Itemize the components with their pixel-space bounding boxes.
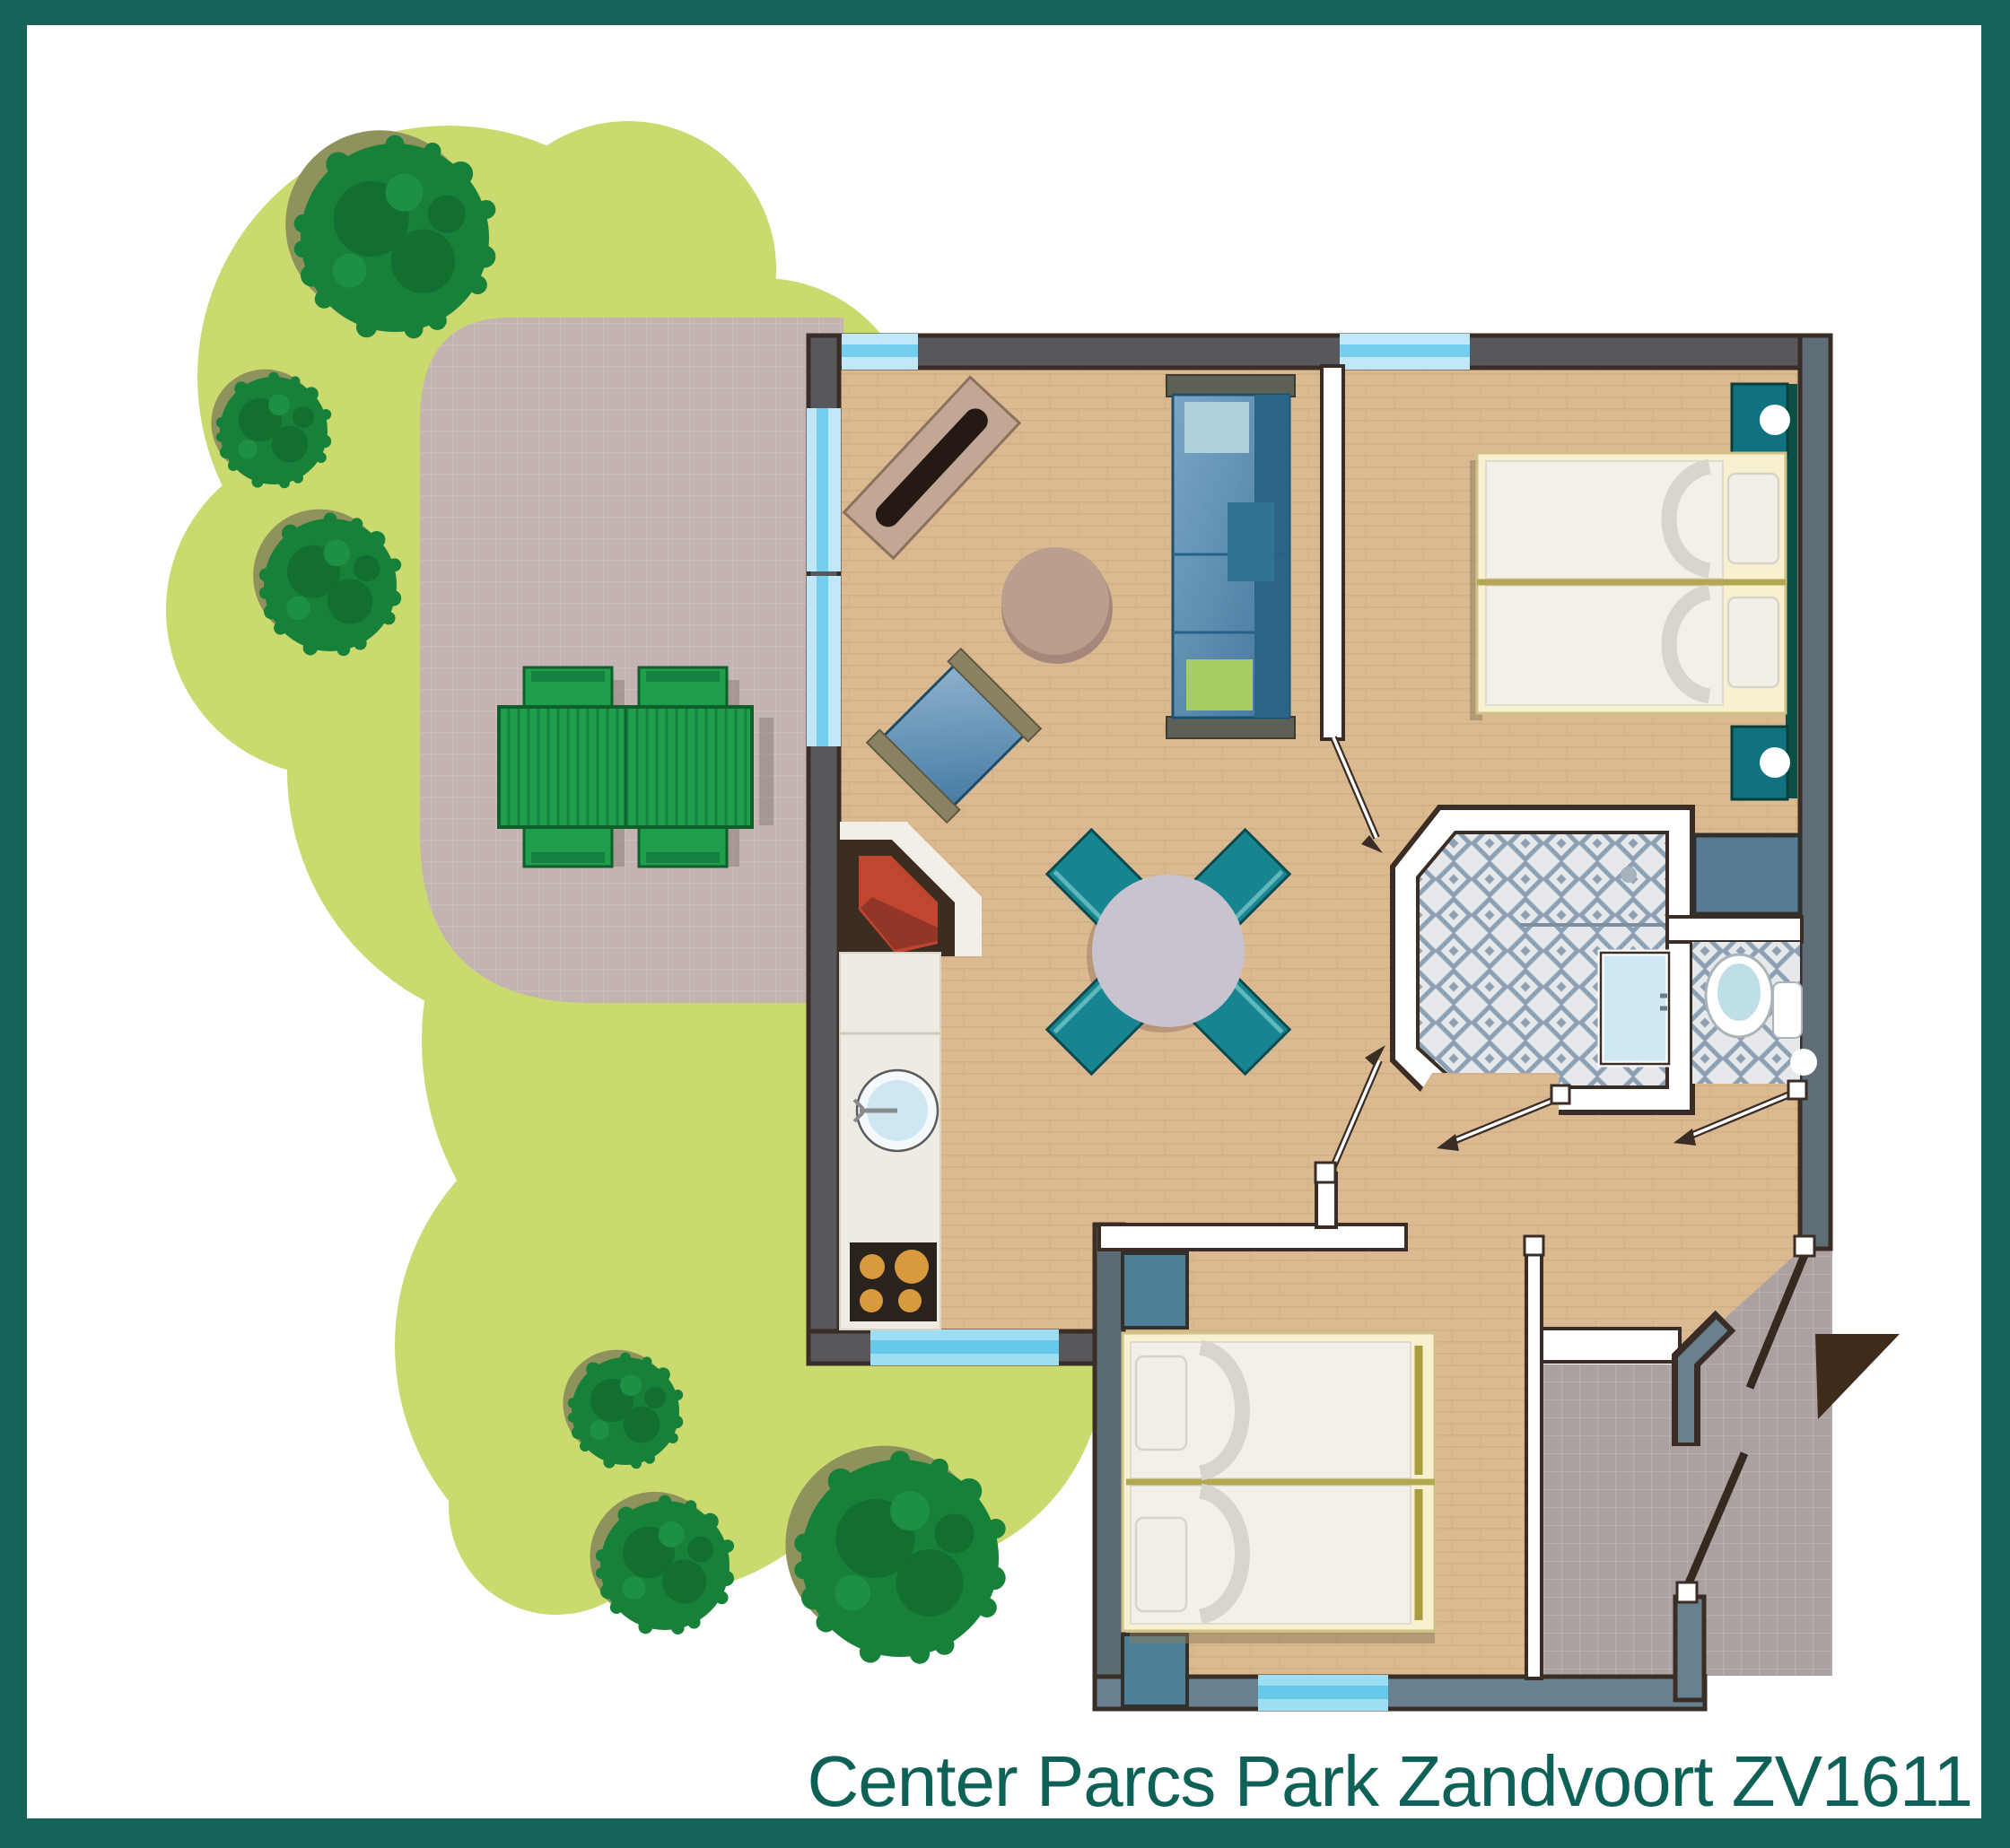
svg-text:Center Parcs Park Zandvoort ZV: Center Parcs Park Zandvoort ZV1611 [808, 1741, 1972, 1821]
